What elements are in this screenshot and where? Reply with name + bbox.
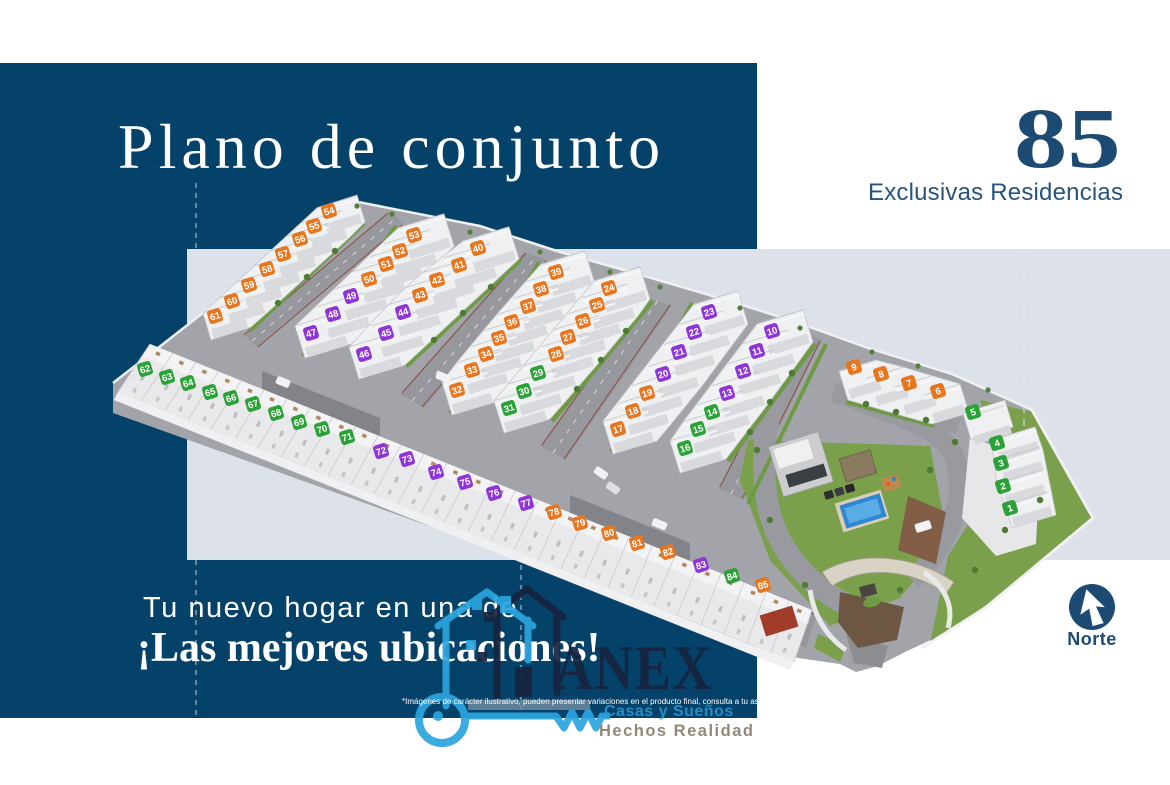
svg-text:Hechos Realidad: Hechos Realidad — [599, 722, 754, 740]
svg-text:ANEX: ANEX — [554, 632, 713, 703]
